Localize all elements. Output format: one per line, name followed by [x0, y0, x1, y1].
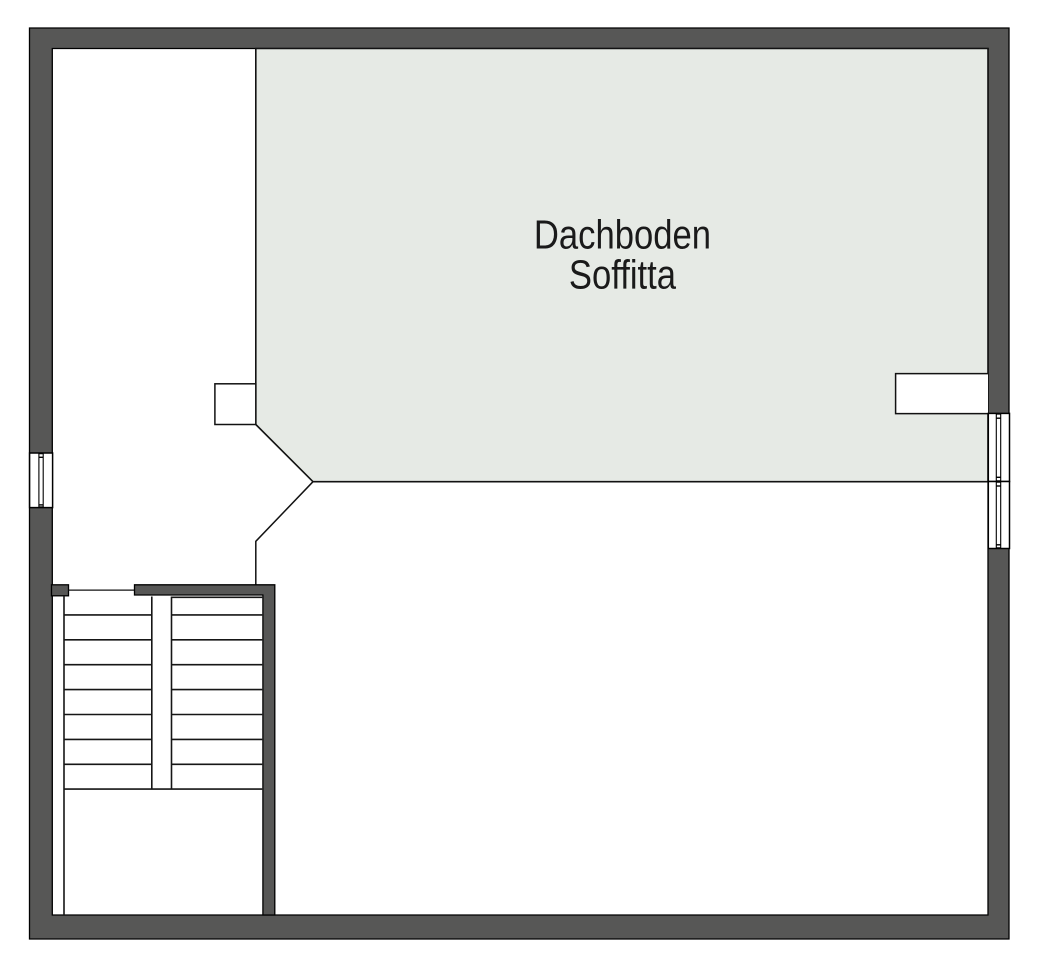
- svg-text:Soffitta: Soffitta: [569, 253, 677, 298]
- svg-text:Dachboden: Dachboden: [534, 213, 711, 258]
